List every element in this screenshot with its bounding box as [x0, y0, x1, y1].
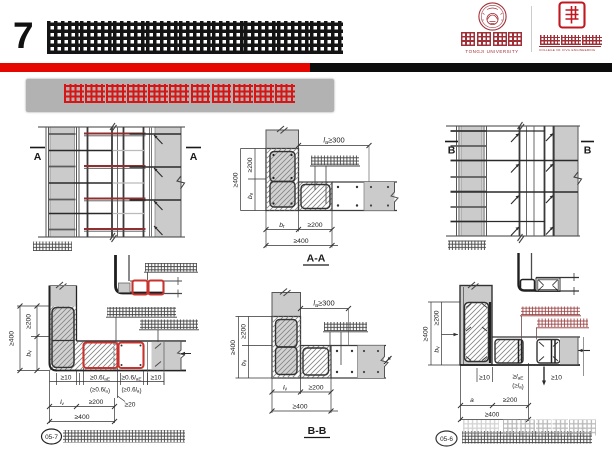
svg-text:05-6: 05-6	[440, 436, 453, 443]
svg-text:la≥300: la≥300	[313, 299, 334, 310]
svg-text:A-A: A-A	[307, 253, 326, 265]
svg-text:≥400: ≥400	[233, 172, 240, 187]
svg-text:a: a	[470, 397, 474, 404]
svg-text:≥200: ≥200	[503, 397, 518, 404]
svg-text:≥400: ≥400	[293, 238, 308, 245]
svg-text:br: br	[279, 222, 285, 230]
svg-text:≥0.6laE: ≥0.6laE	[121, 375, 141, 383]
svg-text:lv: lv	[60, 399, 64, 407]
svg-text:≥200: ≥200	[307, 222, 322, 229]
svg-text:bv: bv	[434, 346, 442, 353]
svg-text:≥200: ≥200	[434, 310, 441, 325]
svg-text:bv: bv	[247, 192, 255, 199]
svg-text:≥400: ≥400	[423, 326, 430, 341]
svg-text:lv: lv	[283, 385, 288, 393]
svg-text:≥10: ≥10	[479, 375, 490, 382]
svg-text:B: B	[584, 145, 592, 157]
svg-text:(≥0.6la): (≥0.6la)	[121, 387, 141, 395]
svg-text:B: B	[448, 145, 456, 157]
svg-text:≥400: ≥400	[485, 412, 500, 419]
svg-text:(≥la): (≥la)	[512, 383, 523, 391]
svg-text:≥20: ≥20	[125, 402, 136, 409]
svg-text:≥200: ≥200	[26, 314, 33, 329]
svg-text:≥400: ≥400	[292, 404, 307, 411]
svg-text:la≥300: la≥300	[323, 136, 344, 147]
svg-text:≥laE: ≥laE	[513, 374, 524, 382]
svg-text:A: A	[190, 151, 198, 163]
svg-text:B-B: B-B	[308, 425, 327, 437]
svg-text:(≥0.6la): (≥0.6la)	[90, 387, 110, 395]
svg-text:≥200: ≥200	[308, 385, 323, 392]
svg-text:≥200: ≥200	[241, 324, 248, 339]
svg-text:A: A	[34, 151, 42, 163]
svg-text:≥10: ≥10	[61, 375, 72, 382]
svg-text:≥200: ≥200	[247, 157, 254, 172]
svg-text:≥400: ≥400	[74, 414, 89, 421]
svg-text:05-7: 05-7	[45, 434, 58, 441]
svg-text:≥400: ≥400	[230, 340, 237, 355]
svg-text:≥400: ≥400	[9, 331, 16, 346]
svg-text:bv: bv	[241, 359, 249, 366]
svg-text:≥10: ≥10	[151, 375, 162, 382]
svg-text:≥10: ≥10	[551, 375, 562, 382]
svg-text:≥0.6laE: ≥0.6laE	[90, 375, 110, 383]
svg-text:bv: bv	[26, 350, 34, 357]
svg-text:≥200: ≥200	[89, 399, 104, 406]
